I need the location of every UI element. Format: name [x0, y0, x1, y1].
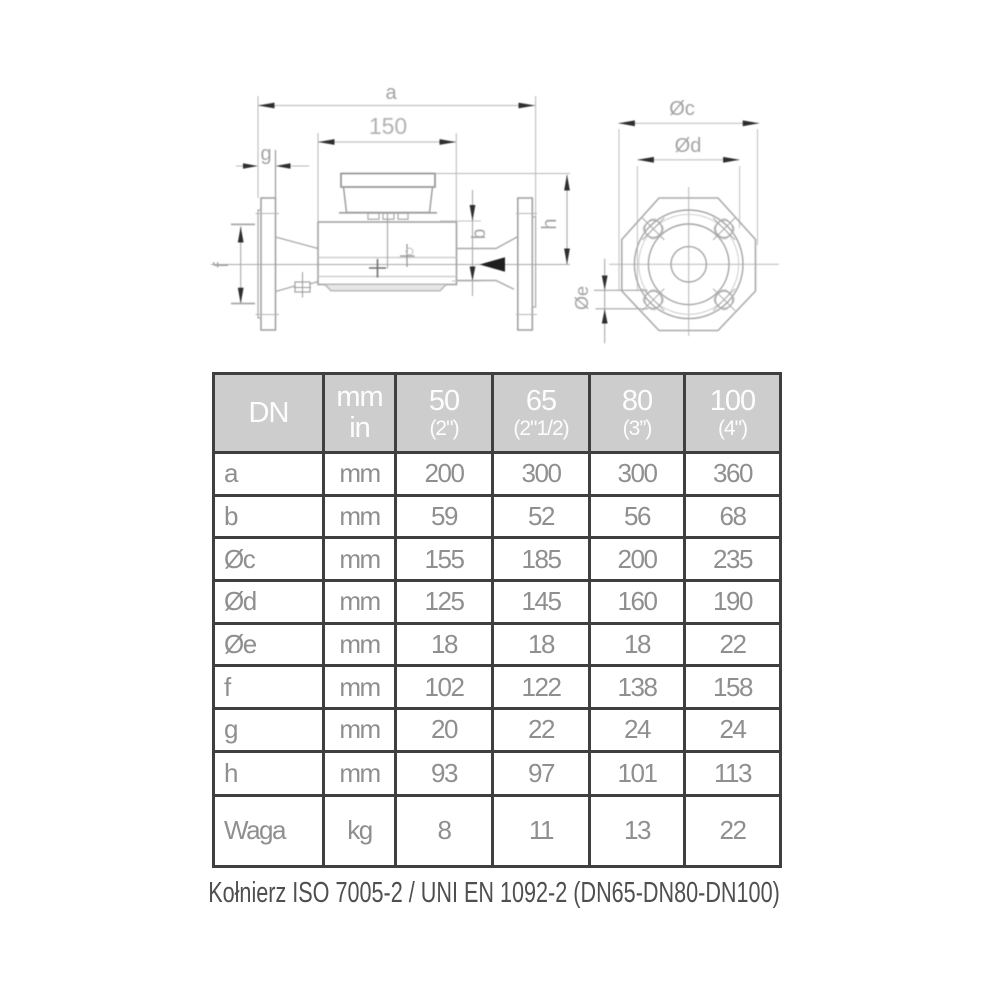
svg-text:g: g	[260, 143, 271, 165]
svg-text:a: a	[385, 82, 397, 104]
svg-text:f: f	[211, 262, 233, 268]
svg-text:b: b	[469, 229, 490, 240]
svg-text:150: 150	[369, 113, 407, 139]
svg-text:h: h	[539, 218, 561, 229]
svg-text:Øe: Øe	[572, 286, 592, 310]
svg-text:Øc: Øc	[669, 98, 695, 120]
svg-text:Ød: Ød	[675, 135, 702, 157]
